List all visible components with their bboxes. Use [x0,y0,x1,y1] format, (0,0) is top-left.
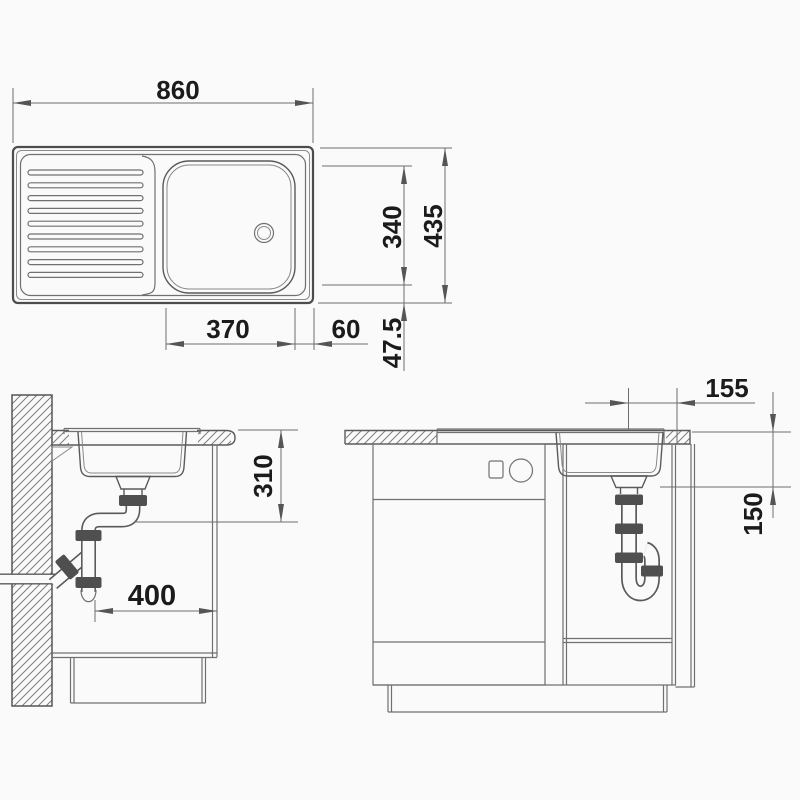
side-drain-flange [116,477,150,496]
trap-nut [119,495,147,506]
dim-outlet-height-label: 310 [248,454,278,497]
side-bowl-section [78,432,187,495]
counter-wall-bracket [52,447,72,461]
drainer-ribs [28,170,143,277]
dim-overall-width-label: 860 [156,75,199,105]
side-view: 310 400 [0,395,298,706]
trap-nut [615,553,643,564]
end-panel [676,444,695,687]
front-drain-flange [611,476,647,494]
dim-outlet-wall-distance-label: 400 [128,580,176,612]
dim-outlet-drop: 150 [660,392,791,536]
trap-nut [76,530,102,541]
trap-nut [641,566,663,577]
appliance-knob [510,459,533,482]
dim-outlet-drop-label: 150 [738,492,768,535]
appliance-front [373,444,545,685]
front-plinth [388,685,667,712]
trap-nut [76,577,102,588]
trap-nut [615,524,643,535]
front-waste-trap [615,495,663,594]
dim-outlet-offset-right-label: 155 [705,373,748,403]
front-view: 155 150 [345,373,791,712]
dim-overall-depth-label: 435 [418,204,448,247]
dim-bowl-depth: 340 47.5 [377,166,407,371]
drainer-edge [142,156,155,295]
front-sink-rim [437,429,664,444]
dim-bowl-depth-label: 340 [377,205,407,248]
appliance-button [489,461,503,478]
side-plinth [71,658,206,704]
dim-bowl-right-margin-label: 60 [332,314,361,344]
bowl-plan [163,161,295,293]
dim-bowl-bottom-margin-label: 47.5 [377,318,407,369]
plan-view: 860 340 47.5 435 [13,75,452,371]
dim-outlet-wall-distance: 400 [95,580,217,622]
dim-bowl-width: 370 60 [166,308,368,350]
technical-drawing-canvas: 860 340 47.5 435 [0,0,800,800]
dim-overall-width: 860 [13,75,313,143]
side-sink-rim [64,429,200,435]
dim-overall-depth: 435 [418,148,448,303]
front-bowl-section [556,433,663,495]
wall-section [12,395,52,706]
sink-dimension-drawing: 860 340 47.5 435 [0,0,800,800]
trap-nut [615,495,643,506]
dim-bowl-width-label: 370 [206,314,249,344]
